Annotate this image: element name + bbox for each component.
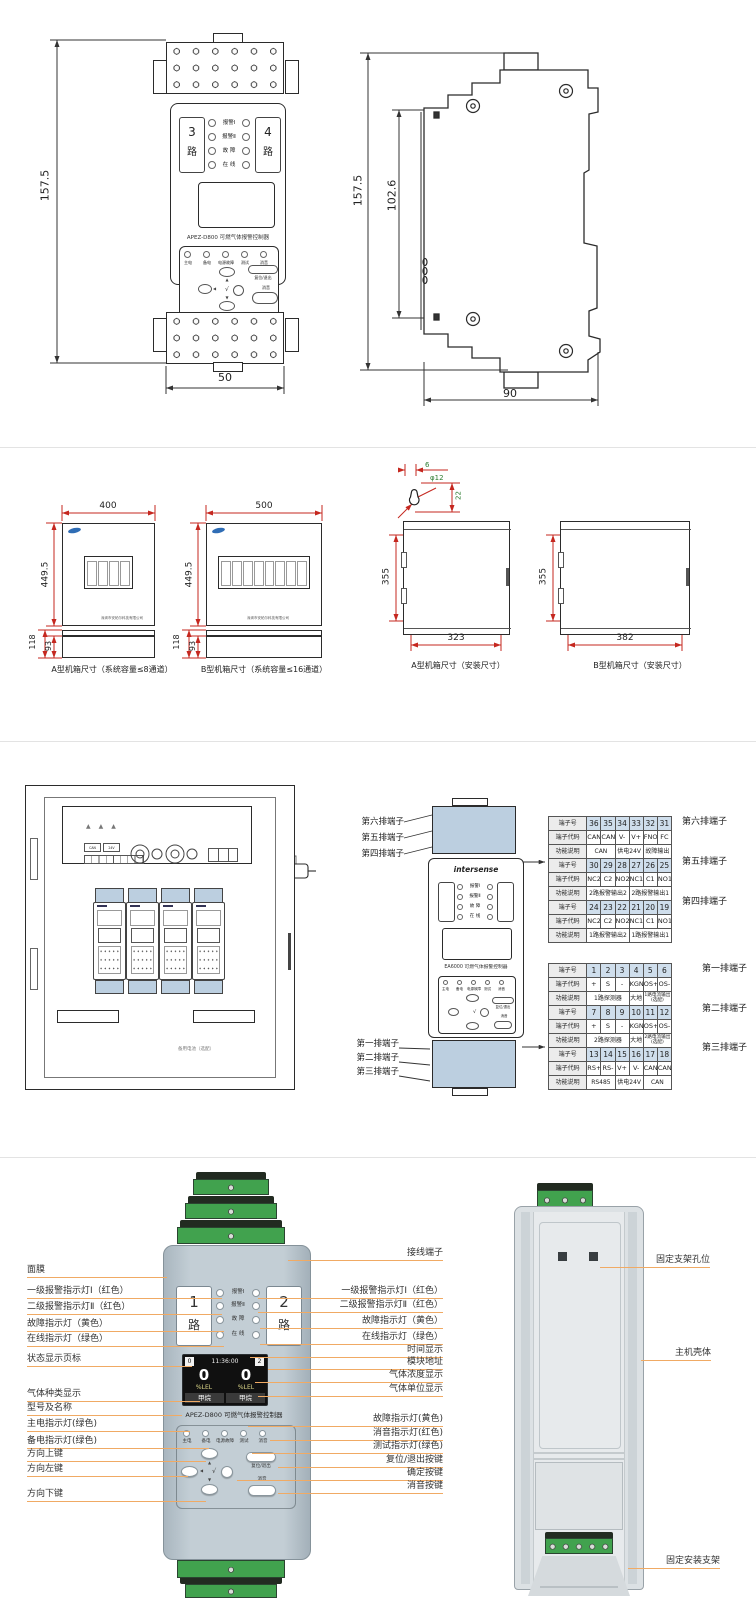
cabB-depth1-dim: 118 [173, 627, 181, 657]
callout-text: 二级报警指示灯Ⅱ（红色） [27, 1302, 130, 1312]
callout-text: 气体浓度显示 [389, 1370, 443, 1380]
callout-text: 一级报警指示灯Ⅰ（红色） [341, 1286, 443, 1296]
channel-4-number: 4 [256, 126, 280, 138]
cabA-inner-panel [84, 556, 133, 589]
can-terminal-block: CAN [84, 843, 101, 852]
front-model-text: APEZ-D800 可燃气体报警控制器 [172, 236, 284, 242]
terminal-cap-1 [196, 1172, 266, 1179]
front-flange-tr [285, 60, 299, 94]
led-label-online: 在 线 [219, 163, 239, 169]
front-flange-bl [153, 318, 167, 352]
v24-terminal-block: 24V [103, 843, 120, 852]
m-up-button [466, 994, 479, 1002]
section-divider-2 [0, 741, 756, 742]
cabB-inner-panel [218, 556, 310, 589]
terminal-table-top: 端子号363534333231 端子代码CAN-CAN+V-V+FNOFC 功能… [548, 816, 672, 943]
m-reset-button [492, 997, 514, 1004]
m-alarm2-led-r [487, 894, 493, 900]
side-label-row3: 第三排端子 [702, 1044, 747, 1053]
mute-button [252, 292, 278, 304]
cabA-depth-box [62, 636, 155, 658]
led-label-fault: 故 障 [219, 149, 239, 155]
terminal-row-3 [177, 1227, 285, 1244]
m-alarm1-led-r [487, 884, 493, 890]
mute-led [260, 251, 267, 258]
power-fault-led [222, 251, 229, 258]
led-label-alarm1: 报警Ⅰ [219, 121, 239, 127]
battery-bracket-left [57, 1010, 119, 1023]
callout-text: 气体种类显示 [27, 1389, 81, 1399]
m-backup-led [457, 980, 462, 985]
m-mute-led [499, 980, 504, 985]
v24-label: 24V [108, 846, 114, 850]
terminal-row-b2 [185, 1584, 277, 1598]
bracket-hole-2 [589, 1252, 598, 1261]
side-height-dim: 157.5 [353, 161, 364, 221]
rear-rail-left [521, 1212, 530, 1584]
side-mid-dim: 102.6 [387, 166, 398, 226]
d-fault-led-r [252, 1316, 260, 1324]
front-channel-4: 4 路 [255, 117, 281, 173]
front-flange-br [285, 318, 299, 352]
side-label-row6: 第六排端子 [682, 818, 727, 827]
callout-text: 测试指示灯(绿色) [373, 1441, 443, 1451]
d-led-label-4: 在 线 [227, 1332, 249, 1338]
front-terminal-block-bottom [166, 312, 284, 364]
up-arrow-icon: ▲ [223, 278, 231, 282]
mntA-width-dim: 323 [440, 634, 472, 643]
led-label-alarm2: 报警Ⅱ [219, 135, 239, 141]
module-terminals-top [432, 806, 516, 854]
callout-alarm2-left: 二级报警指示灯Ⅱ（红色） [27, 1299, 222, 1315]
d-mute-led [259, 1430, 266, 1437]
callout-text: 气体单位显示 [389, 1384, 443, 1394]
callout-text: 一级报警指示灯Ⅰ（红色） [27, 1286, 129, 1296]
cabB-depth2-dim: 93 [189, 635, 197, 657]
left-button [198, 284, 212, 294]
spec-sheet-canvas: 157.5 50 3 路 4 路 报警Ⅰ 报警Ⅱ 故 障 在 线 APEZ-D8… [0, 0, 756, 1600]
m-main-led [443, 980, 448, 985]
status-label-main: 主电 [179, 261, 197, 265]
cabB-depth-box [206, 636, 322, 658]
module-address-badge: 2 [255, 1357, 264, 1366]
module-terminals-bottom [432, 1040, 516, 1088]
alarm1-led-ch4 [242, 119, 250, 127]
mount-plate-a [403, 521, 510, 635]
side-label-row1: 第一排端子 [702, 965, 747, 974]
mount-bracket-plate [535, 1462, 623, 1530]
m-alarm2-led [457, 894, 463, 900]
reset-exit-button [248, 265, 278, 274]
d-status-3: 电源故障 [213, 1440, 237, 1445]
main-power-led [184, 251, 191, 258]
down-button [219, 301, 235, 311]
d-left-mark: ◀ [200, 1469, 207, 1473]
mntA-latch-slot [506, 568, 509, 586]
m-check-icon: √ [473, 1010, 476, 1015]
callout-text: 方向下键 [27, 1489, 63, 1499]
callout-text: 在线指示灯（绿色） [27, 1334, 108, 1344]
m-mute-button [494, 1021, 512, 1029]
m-left-button [448, 1008, 459, 1016]
mount-plate-b [560, 521, 690, 635]
cabinet-b-caption: B型机箱尺寸（系统容量≤16通道） [190, 666, 338, 674]
m-status-5: 消音 [494, 988, 509, 992]
m-alarm1-led [457, 884, 463, 890]
m-status-4: 测试 [480, 988, 495, 992]
side-label-row2: 第二排端子 [702, 1005, 747, 1014]
mntB-width-dim: 382 [608, 634, 642, 643]
module-ch-right-box [497, 882, 514, 922]
bracket-feet-line [540, 1586, 618, 1588]
channel-3-number: 3 [180, 126, 204, 138]
battery-note: 备用电池（选配） [178, 1048, 214, 1053]
cabinet-door-hinge-1 [30, 838, 38, 880]
check-icon: √ [225, 287, 233, 293]
front-terminal-block-top [166, 42, 284, 94]
callout-main-power-led: 主电指示灯(绿色) [27, 1416, 190, 1432]
section-divider-3 [0, 1157, 756, 1158]
din-module-3 [159, 888, 190, 992]
m-online-led-r [487, 914, 493, 920]
front-flange-tl [153, 60, 167, 94]
cabinet-latch [288, 933, 291, 970]
d-check-mark: √ [212, 1468, 220, 1475]
gas-value-1: 0 [185, 1368, 223, 1383]
m-test-led [485, 980, 490, 985]
test-led [241, 251, 248, 258]
down-arrow-icon: ▼ [223, 296, 231, 300]
cabA-depth1-dim: 118 [29, 627, 37, 657]
rear-terminal-cap [537, 1183, 593, 1190]
callout-online-left: 在线指示灯（绿色） [27, 1331, 224, 1347]
warning-triangles: ▲▲▲ [86, 824, 124, 830]
fault-led-ch4 [242, 147, 250, 155]
d-up-mark: ▲ [205, 1461, 214, 1465]
d-led-label-2: 报警Ⅱ [227, 1303, 249, 1309]
rear-seam-2 [533, 1458, 625, 1460]
module-model-text: EA6000 可燃气体报警控制器 [428, 966, 524, 971]
rear-terminal-bottom [545, 1538, 613, 1554]
d-pfault-led [221, 1430, 228, 1437]
mntB-latch-slot [686, 568, 689, 586]
mntB-hinge-1 [558, 552, 564, 568]
d-online-led-r [252, 1331, 260, 1339]
callout-text: 消音指示灯(红色) [373, 1428, 443, 1438]
m-fault-led-r [487, 904, 493, 910]
terminal-row-2 [185, 1203, 277, 1219]
front-width-dim: 50 [205, 372, 245, 383]
callout-mute-key: 消音按键 [278, 1478, 443, 1494]
m-online-led [457, 914, 463, 920]
terminal-table-bottom: 端子号123456 端子代码+S-KGNDOS+OS- 功能说明1路探测器大地1… [548, 963, 672, 1090]
callout-text: 固定安装支架 [666, 1556, 720, 1566]
callout-fault-right: 故障指示灯（黄色） [260, 1313, 443, 1329]
channel-3-lu: 路 [180, 148, 204, 158]
callout-main-shell: 主机壳体 [641, 1345, 711, 1361]
status-label-powerfault: 电源故障 [214, 261, 238, 265]
m-fault-led [457, 904, 463, 910]
left-arrow-icon: ◀ [213, 287, 219, 291]
m-led-label-2: 报警Ⅱ [466, 895, 484, 900]
callout-text: 消音按键 [407, 1481, 443, 1491]
row-label-4: 第四排端子 [350, 850, 404, 859]
callout-text: 主机壳体 [675, 1348, 711, 1358]
callout-terminals: 接线端子 [288, 1245, 443, 1261]
mute-label: 消音 [256, 286, 276, 290]
front-height-dim: 157.5 [40, 156, 51, 216]
mntA-height-dim: 355 [383, 562, 392, 592]
battery-bracket-right [193, 1010, 255, 1023]
din-module-2 [126, 888, 157, 992]
d-down-mark: ▼ [205, 1478, 214, 1482]
row-label-2: 第二排端子 [345, 1054, 399, 1063]
front-channel-3: 3 路 [179, 117, 205, 173]
callout-text: 故障指示灯（黄色） [27, 1319, 108, 1329]
callout-gas-unit: 气体单位显示 [258, 1381, 443, 1397]
front-screen [198, 182, 275, 228]
callout-text: 状态显示页标 [27, 1354, 81, 1364]
m-led-label-1: 报警Ⅰ [466, 885, 484, 890]
terminal-cap-2 [188, 1196, 274, 1203]
mount-b-caption: B型机箱尺寸（安装尺寸） [590, 662, 690, 670]
d-test-led [240, 1430, 247, 1437]
d-led-label-1: 报警Ⅰ [227, 1290, 249, 1296]
m-pfault-led [471, 980, 476, 985]
callout-alarm1-left: 一级报警指示灯Ⅰ（红色） [27, 1283, 222, 1299]
d-ok-button [221, 1466, 233, 1478]
callout-text: 面膜 [27, 1265, 45, 1275]
terminal-row-1 [193, 1179, 269, 1195]
m-reset-label: 复位/退出 [489, 1006, 517, 1009]
callout-text: 模块地址 [407, 1357, 443, 1367]
backup-power-led [203, 251, 210, 258]
d-led-label-3: 故 障 [227, 1317, 249, 1323]
d-mute-button [248, 1485, 276, 1496]
cabA-width-dim: 400 [88, 502, 128, 511]
up-button [219, 267, 235, 277]
cabA-height-dim: 449.5 [42, 553, 51, 597]
bracket-feet [528, 1556, 630, 1596]
bracket-hole-1 [558, 1252, 567, 1261]
callout-text: 型号及名称 [27, 1403, 72, 1413]
callout-text: 接线端子 [407, 1248, 443, 1258]
callout-up-key: 方向上键 [27, 1446, 206, 1462]
row-label-1: 第一排端子 [345, 1040, 399, 1049]
alarm2-led [208, 133, 216, 141]
cabinet-a-caption: A型机箱尺寸（系统容量≤8通道） [42, 666, 182, 674]
din-module-4 [192, 888, 223, 992]
callout-bracket-holes: 固定支架孔位 [600, 1252, 710, 1268]
cabinet-door-hinge-2 [30, 948, 38, 990]
module-screen [442, 928, 512, 960]
callout-text: 二级报警指示灯Ⅱ（红色） [340, 1300, 443, 1310]
row-label-6: 第六排端子 [350, 818, 404, 827]
brand-logo: intersense [428, 866, 524, 874]
keyhole-dim-d12: φ12 [430, 475, 444, 482]
d-status-4: 测试 [235, 1440, 253, 1445]
callout-text: 故障指示灯(黄色) [373, 1414, 443, 1424]
callout-model-name: 型号及名称 [27, 1400, 182, 1416]
callout-text: 备电指示灯(绿色) [27, 1436, 97, 1446]
online-led-ch4 [242, 161, 250, 169]
m-status-1: 主电 [438, 988, 453, 992]
m-down-button [466, 1022, 479, 1030]
m-led-label-3: 故 障 [466, 905, 484, 910]
cabA-company: 深圳市安帕尔科技有限公司 [92, 617, 152, 621]
keyhole-dim-6: 6 [425, 462, 429, 469]
callout-text: 确定按键 [407, 1468, 443, 1478]
fault-led [208, 147, 216, 155]
cabB-company: 深圳市安帕尔科技有限公司 [238, 617, 298, 621]
module-bottom-cap [452, 1088, 488, 1096]
mntB-hinge-2 [558, 588, 564, 604]
can-label: CAN [89, 846, 96, 850]
cabB-height-dim: 449.5 [186, 553, 195, 597]
reset-exit-label: 复位/退出 [246, 276, 280, 280]
callout-text: 故障指示灯（黄色） [362, 1316, 443, 1326]
side-label-row5: 第五排端子 [682, 858, 727, 867]
mntB-height-dim: 355 [540, 562, 549, 592]
online-led [208, 161, 216, 169]
alarm2-led-ch4 [242, 133, 250, 141]
callout-text: 方向左键 [27, 1464, 63, 1474]
callout-left-key: 方向左键 [27, 1461, 188, 1477]
mntA-hinge-1 [401, 552, 407, 568]
cabB-width-dim: 500 [244, 502, 284, 511]
cabA-depth2-dim: 93 [45, 635, 53, 657]
terminal-row-b1 [177, 1560, 285, 1578]
row-label-5: 第五排端子 [350, 834, 404, 843]
module-top-cap [452, 798, 488, 806]
callout-text: 固定支架孔位 [656, 1255, 710, 1265]
callout-status-page: 状态显示页标 [27, 1351, 192, 1367]
callout-text: 主电指示灯(绿色) [27, 1419, 97, 1429]
front-bottom-cap [213, 362, 243, 372]
alarm1-led [208, 119, 216, 127]
m-led-label-4: 在 线 [466, 915, 484, 920]
m-ok-button [480, 1008, 489, 1017]
module-ch-left-box [438, 882, 455, 922]
time-display: 11:36:00 [205, 1359, 245, 1365]
callout-fault-left: 故障指示灯（黄色） [27, 1316, 224, 1332]
callout-down-key: 方向下键 [27, 1486, 206, 1502]
ok-button [233, 285, 244, 296]
side-label-row4: 第四排端子 [682, 898, 727, 907]
din-module-1 [93, 888, 124, 992]
channel-4-lu: 路 [256, 148, 280, 158]
mount-a-caption: A型机箱尺寸（安装尺寸） [408, 662, 508, 670]
fuse-holders [128, 842, 208, 866]
section-divider-1 [0, 447, 756, 448]
mntA-hinge-2 [401, 588, 407, 604]
callout-mount-bracket: 固定安装支架 [628, 1553, 720, 1569]
callout-text: 复位/退出按键 [386, 1455, 443, 1465]
callout-text: 在线指示灯（绿色） [362, 1332, 443, 1342]
ac-input-block [208, 848, 238, 862]
callout-text: 方向上键 [27, 1449, 63, 1459]
rear-seam-1 [533, 1452, 625, 1454]
row-label-3: 第三排端子 [345, 1068, 399, 1077]
terminal-cap-3 [180, 1220, 282, 1227]
side-width-dim: 90 [490, 388, 530, 399]
keyhole-dim-22: 22 [456, 489, 463, 503]
callout-membrane: 面膜 [27, 1262, 167, 1278]
callout-alarm2-right: 二级报警指示灯Ⅱ（红色） [258, 1297, 443, 1313]
m-mute-label: 消音 [496, 1015, 512, 1018]
